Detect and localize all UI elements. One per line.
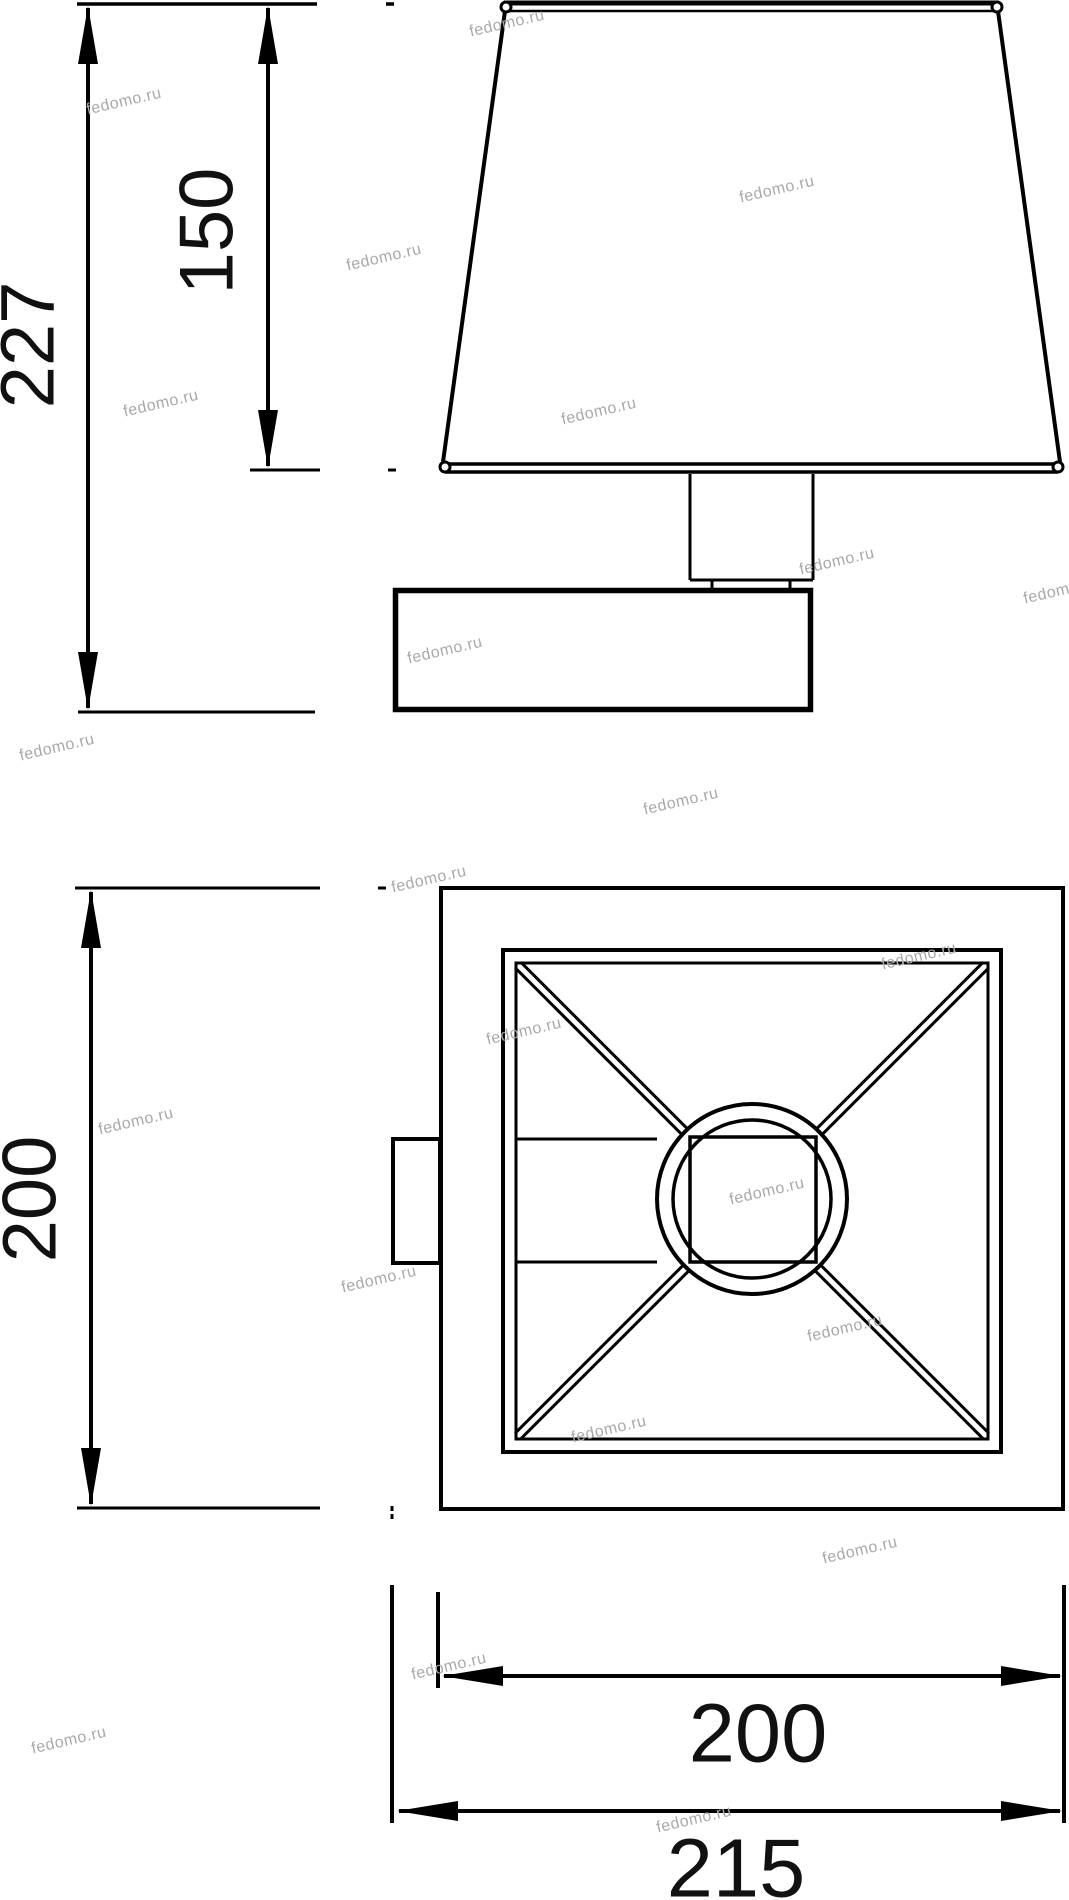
arrow-down-icon [81, 1448, 101, 1506]
watermark: fedomo.ru [806, 1312, 884, 1346]
watermark: fedomo.ru [390, 863, 468, 897]
dim-label-200-bottom: 200 [689, 1687, 827, 1780]
plan-view: 200 200 215 [0, 888, 1064, 1900]
arrow-right-icon [1001, 1666, 1062, 1686]
arrow-down-icon [78, 652, 98, 710]
arrow-left-icon [397, 1801, 458, 1821]
drawing-canvas: 227 150 [0, 0, 1069, 1900]
watermark: fedomo.ru [821, 1534, 899, 1568]
dimension-shade-width: 200 [442, 1666, 1062, 1780]
watermark: fedomo.ru [738, 173, 816, 207]
watermark: fedomo.ru [97, 1105, 175, 1139]
watermark: fedomo.ru [798, 545, 876, 579]
arrow-up-icon [258, 6, 278, 64]
watermark: fedomo.ru [880, 940, 958, 974]
watermark: fedomo.ru [560, 395, 638, 429]
watermark: fedomo.ru [345, 241, 423, 275]
stem [690, 474, 813, 589]
watermark: fedomo.ru [30, 1724, 108, 1758]
plan-wall-plate [393, 1139, 440, 1263]
arrow-up-icon [78, 6, 98, 64]
watermark: fedomo.ru [642, 785, 720, 819]
watermark: fedomo.ru [1022, 574, 1069, 608]
dimension-plan-depth: 200 [0, 888, 386, 1508]
dim-label-200-left: 200 [0, 1136, 73, 1263]
watermark: fedomo.ru [728, 1175, 806, 1209]
shade-corner-dot [440, 462, 450, 472]
arrow-up-icon [81, 890, 101, 948]
dim-label-227: 227 [0, 282, 71, 409]
watermark: fedomo.ru [406, 634, 484, 668]
shade-corner-dot [1053, 462, 1063, 472]
shade-corner-dot [501, 2, 511, 12]
extension-lines-side [77, 4, 396, 712]
watermark: fedomo.ru [122, 387, 200, 421]
watermark: fedomo.ru [570, 1413, 648, 1447]
watermark: fedomo.ru [18, 731, 96, 765]
dim-label-150: 150 [165, 168, 250, 295]
dimensional-drawing: 227 150 [0, 0, 1069, 1900]
watermark: fedomo.ru [485, 1015, 563, 1049]
shade-corner-dot [992, 2, 1002, 12]
arrow-right-icon [1001, 1801, 1062, 1821]
dimension-total-height: 227 [0, 6, 98, 710]
watermark: fedomo.ru [85, 85, 163, 119]
dim-label-215-bottom: 215 [667, 1822, 805, 1900]
watermark: fedomo.ru [340, 1263, 418, 1297]
side-view: 227 150 [0, 2, 1063, 712]
plan-housing-band [516, 1139, 657, 1262]
shade-outline [440, 2, 1063, 472]
arrow-down-icon [258, 410, 278, 468]
